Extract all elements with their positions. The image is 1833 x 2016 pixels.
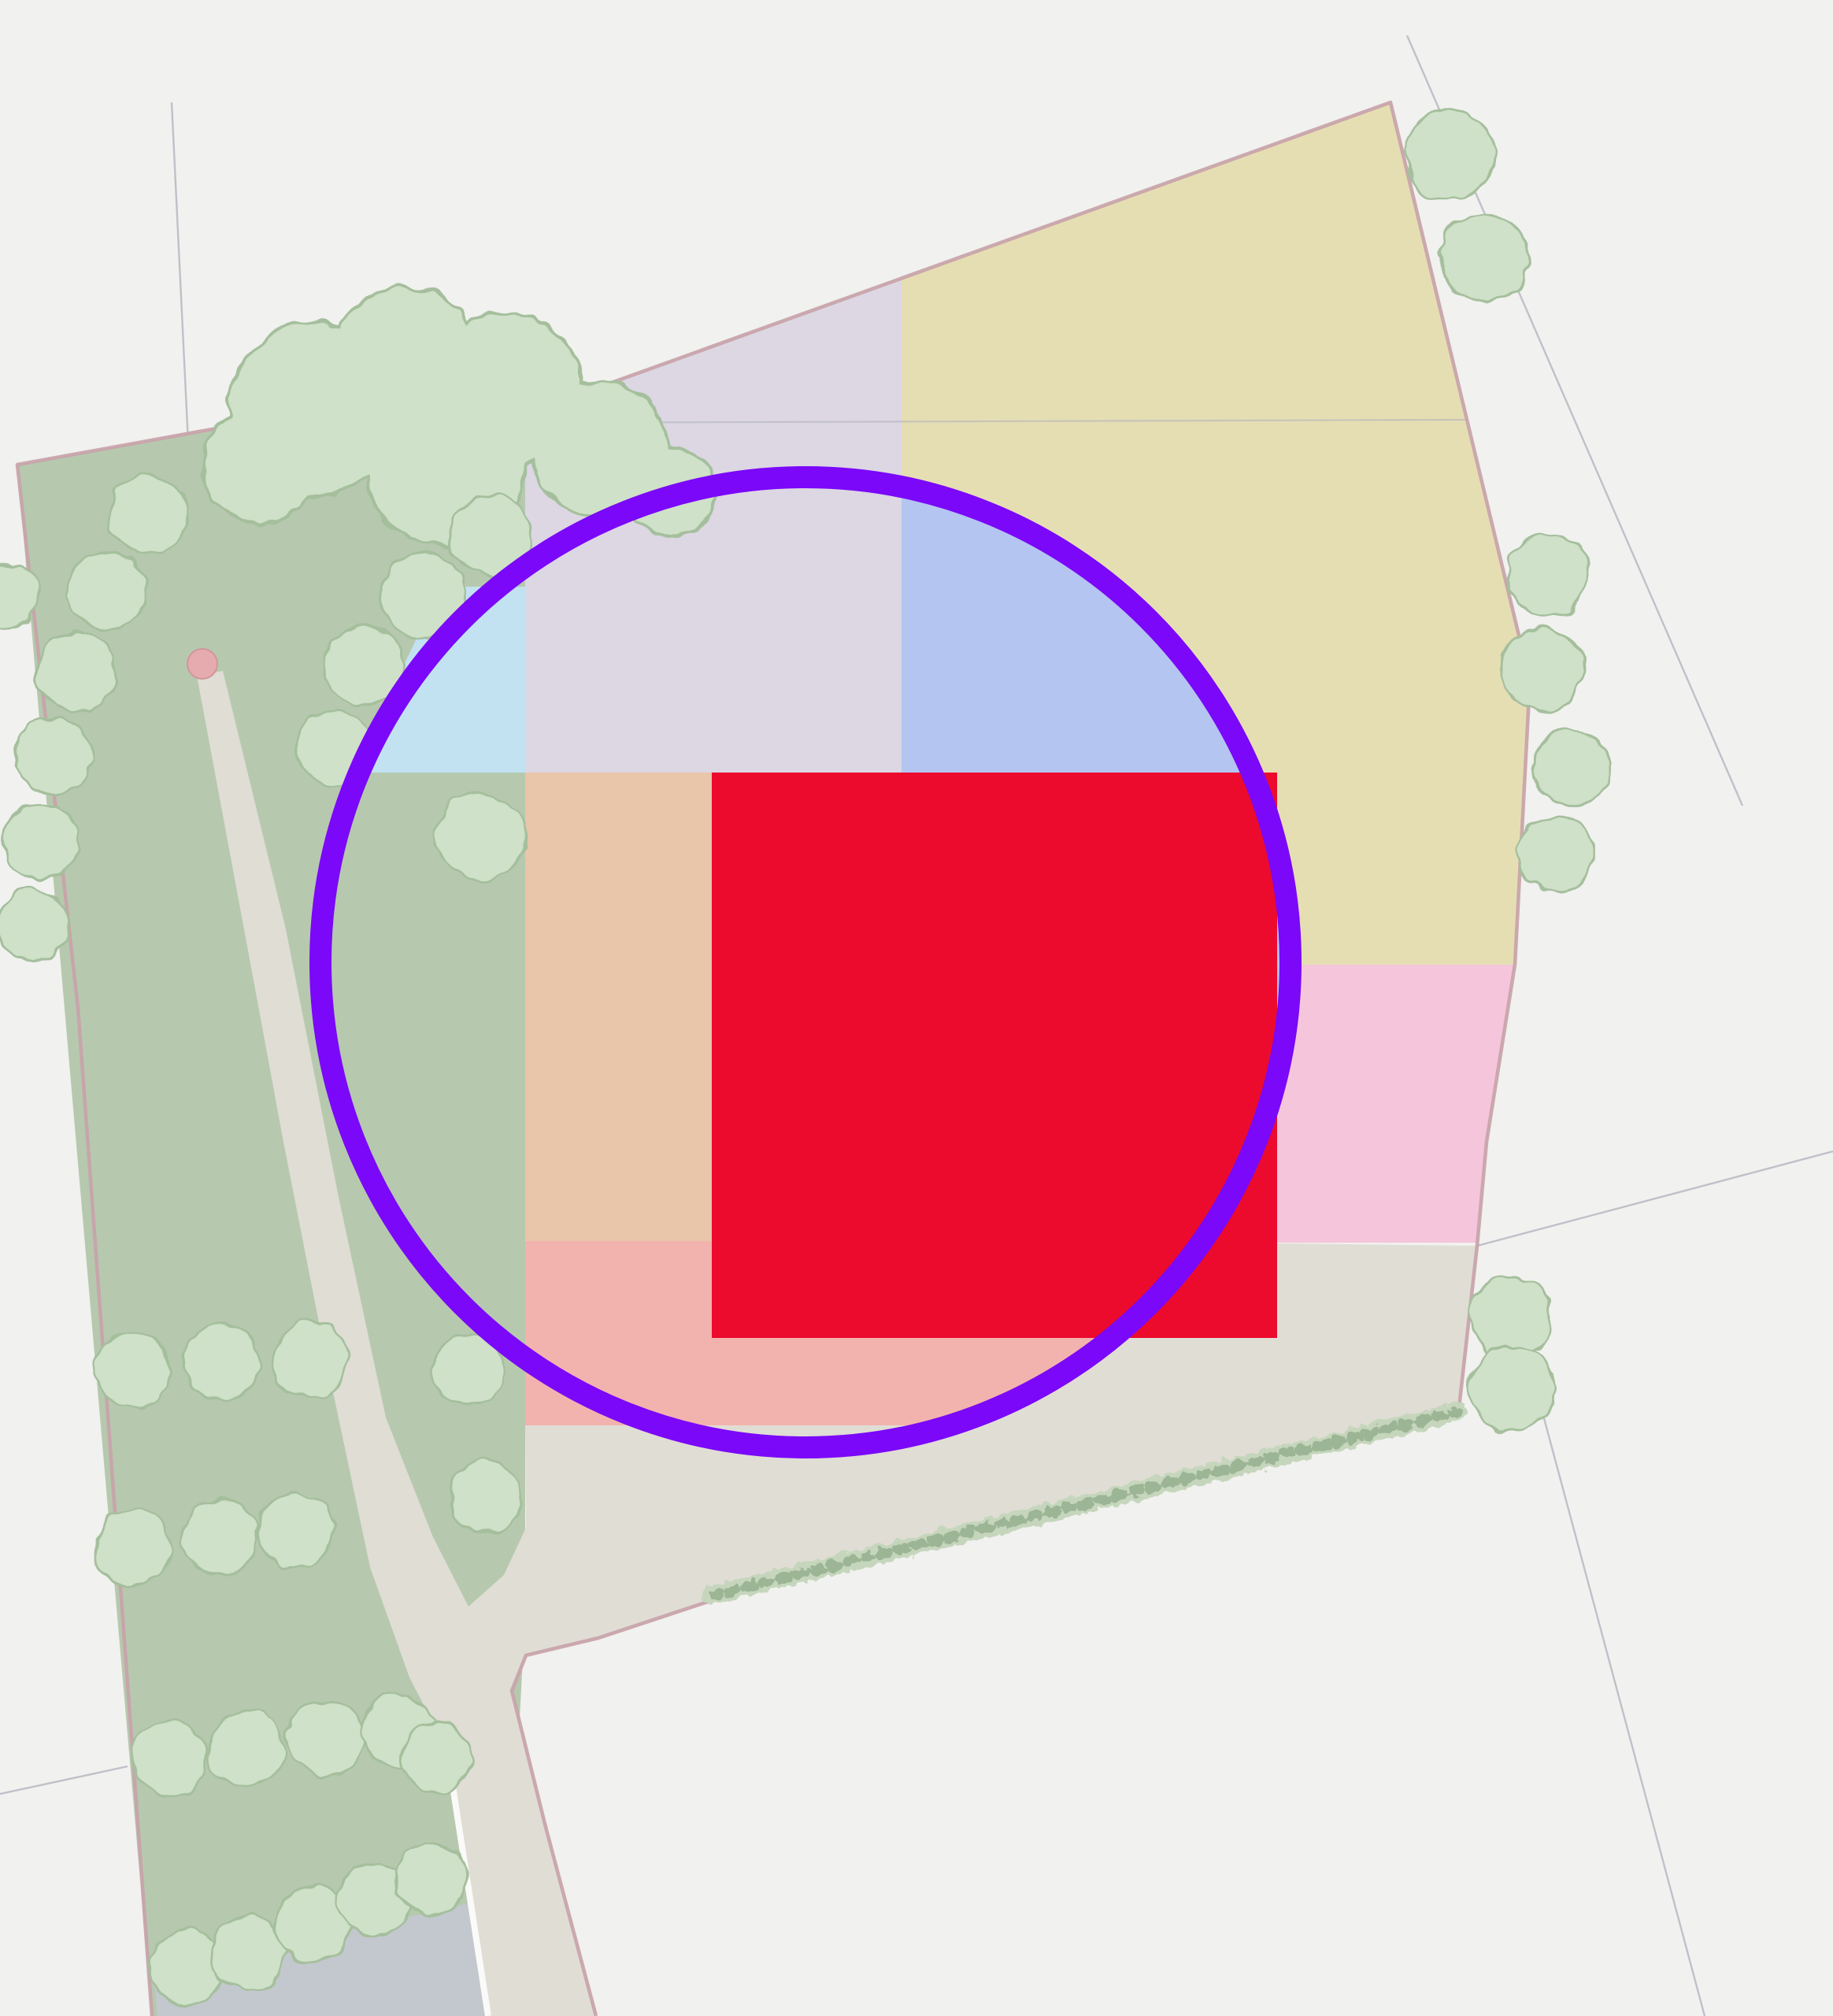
tree-icon bbox=[1533, 730, 1609, 806]
zone-pink bbox=[1277, 965, 1515, 1243]
site-map-svg[interactable] bbox=[0, 0, 1833, 2016]
tree-icon bbox=[402, 1723, 472, 1792]
tree-icon bbox=[131, 1720, 207, 1795]
tree-icon bbox=[3, 803, 79, 879]
tree-icon bbox=[1518, 817, 1594, 893]
tree-icon bbox=[395, 1843, 468, 1915]
tree-icon bbox=[182, 1499, 257, 1575]
zone-orange bbox=[525, 773, 712, 1241]
tree-icon bbox=[450, 1460, 522, 1532]
tree-icon bbox=[95, 1333, 171, 1409]
tree-icon bbox=[16, 718, 91, 794]
tree-icon bbox=[259, 1492, 335, 1568]
tree-icon bbox=[68, 550, 146, 629]
tree-icon bbox=[1507, 534, 1589, 616]
pole-marker bbox=[187, 649, 217, 679]
tree-icon bbox=[1440, 213, 1528, 302]
tree-icon bbox=[273, 1322, 349, 1398]
tree-icon bbox=[0, 889, 69, 962]
tree-icon bbox=[1469, 1347, 1554, 1432]
tree-icon bbox=[109, 476, 187, 554]
tree-icon bbox=[436, 792, 524, 880]
tree-icon bbox=[37, 632, 116, 711]
tree-icon bbox=[287, 1701, 363, 1777]
tree-icon bbox=[1501, 628, 1583, 710]
tree-icon bbox=[1405, 109, 1494, 199]
site-plan-map[interactable] bbox=[0, 0, 1833, 2016]
tree-icon bbox=[184, 1325, 260, 1400]
tree-cloud bbox=[204, 409, 316, 521]
tree-icon bbox=[209, 1710, 284, 1786]
tree-icon bbox=[95, 1510, 171, 1585]
